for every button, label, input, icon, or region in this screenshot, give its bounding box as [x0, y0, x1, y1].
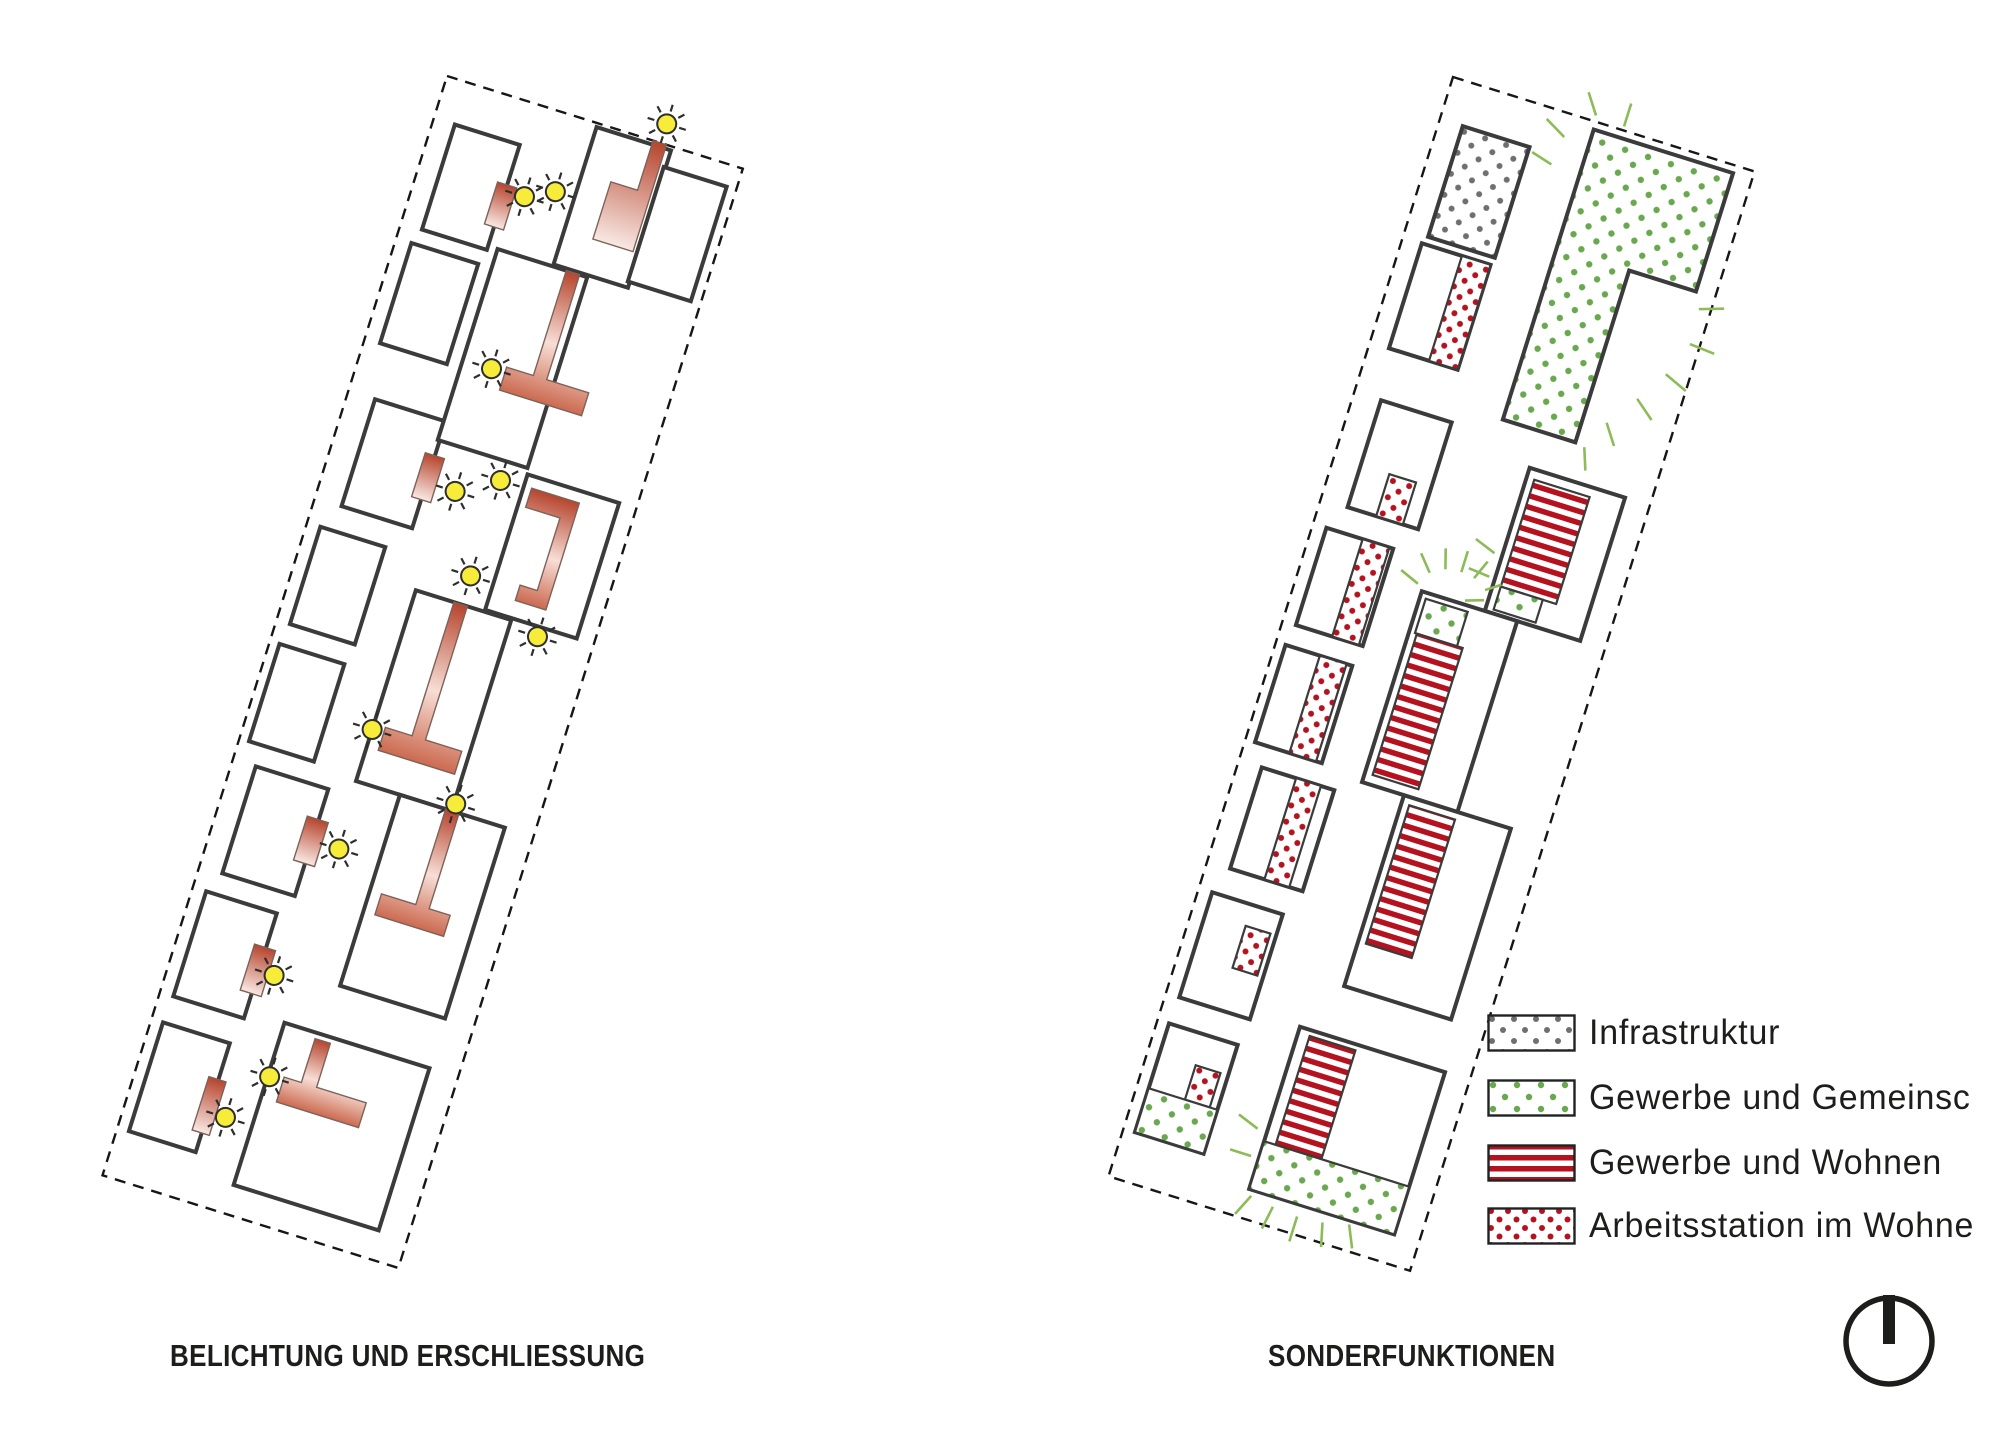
gewerbe-gemeinschaft-area [1503, 129, 1733, 463]
legend-swatch-gray-dots [1487, 1014, 1576, 1052]
legend-item-gewerbe-wohnen: Gewerbe und Wohnen [1487, 1144, 1953, 1182]
legend-item-infrastruktur: Infrastruktur [1487, 1014, 1786, 1052]
legend-label: Infrastruktur [1589, 1014, 1780, 1052]
building [380, 243, 478, 364]
building [1179, 892, 1283, 1019]
legend-item-gewerbe-gemeinschaft: Gewerbe und Gemeinsc [1487, 1079, 1982, 1117]
building [234, 1023, 430, 1231]
legend-item-arbeitsstation: Arbeitsstation im Wohne [1487, 1207, 1986, 1245]
right-diagram-title: SONDERFUNKTIONEN [1268, 1338, 1555, 1374]
north-needle-icon [1883, 1295, 1895, 1344]
legend-swatch-red-stripes [1487, 1144, 1576, 1182]
building [290, 527, 385, 645]
legend-label: Arbeitsstation im Wohne [1589, 1207, 1974, 1245]
left-diagram-title: BELICHTUNG UND ERSCHLIESSUNG [170, 1338, 645, 1374]
legend-swatch-red-dots [1487, 1207, 1576, 1245]
left-site-plan [103, 38, 755, 1268]
north-indicator [1839, 1291, 1939, 1391]
legend-swatch-green-dots [1487, 1079, 1576, 1117]
legend-label: Gewerbe und Gemeinsc [1589, 1079, 1971, 1117]
buildings [121, 83, 732, 1237]
infrastruktur-area [1428, 126, 1529, 258]
legend-label: Gewerbe und Wohnen [1589, 1144, 1942, 1182]
building [249, 644, 344, 762]
